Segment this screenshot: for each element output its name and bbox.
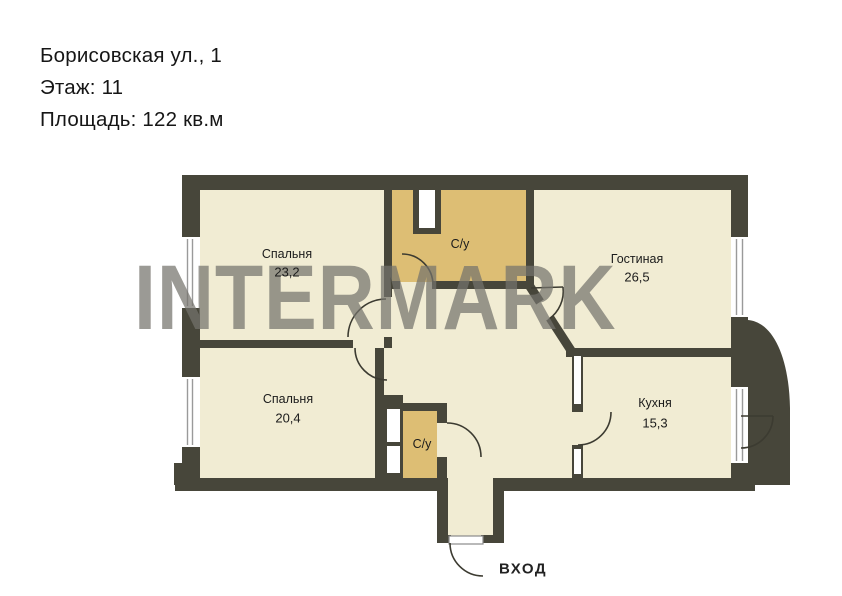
vent-shaft-icon	[413, 190, 441, 234]
window-icon	[731, 237, 748, 317]
door-leaf-living	[531, 287, 563, 288]
entry-door-leaf	[449, 536, 483, 544]
floor-plan	[0, 0, 842, 596]
page: Борисовская ул., 1 Этаж: 11 Площадь: 122…	[0, 0, 842, 596]
entry-door-arc	[450, 543, 483, 576]
window-icon	[182, 377, 200, 447]
balcony-window-icon	[731, 387, 748, 463]
window-icon	[182, 237, 200, 308]
